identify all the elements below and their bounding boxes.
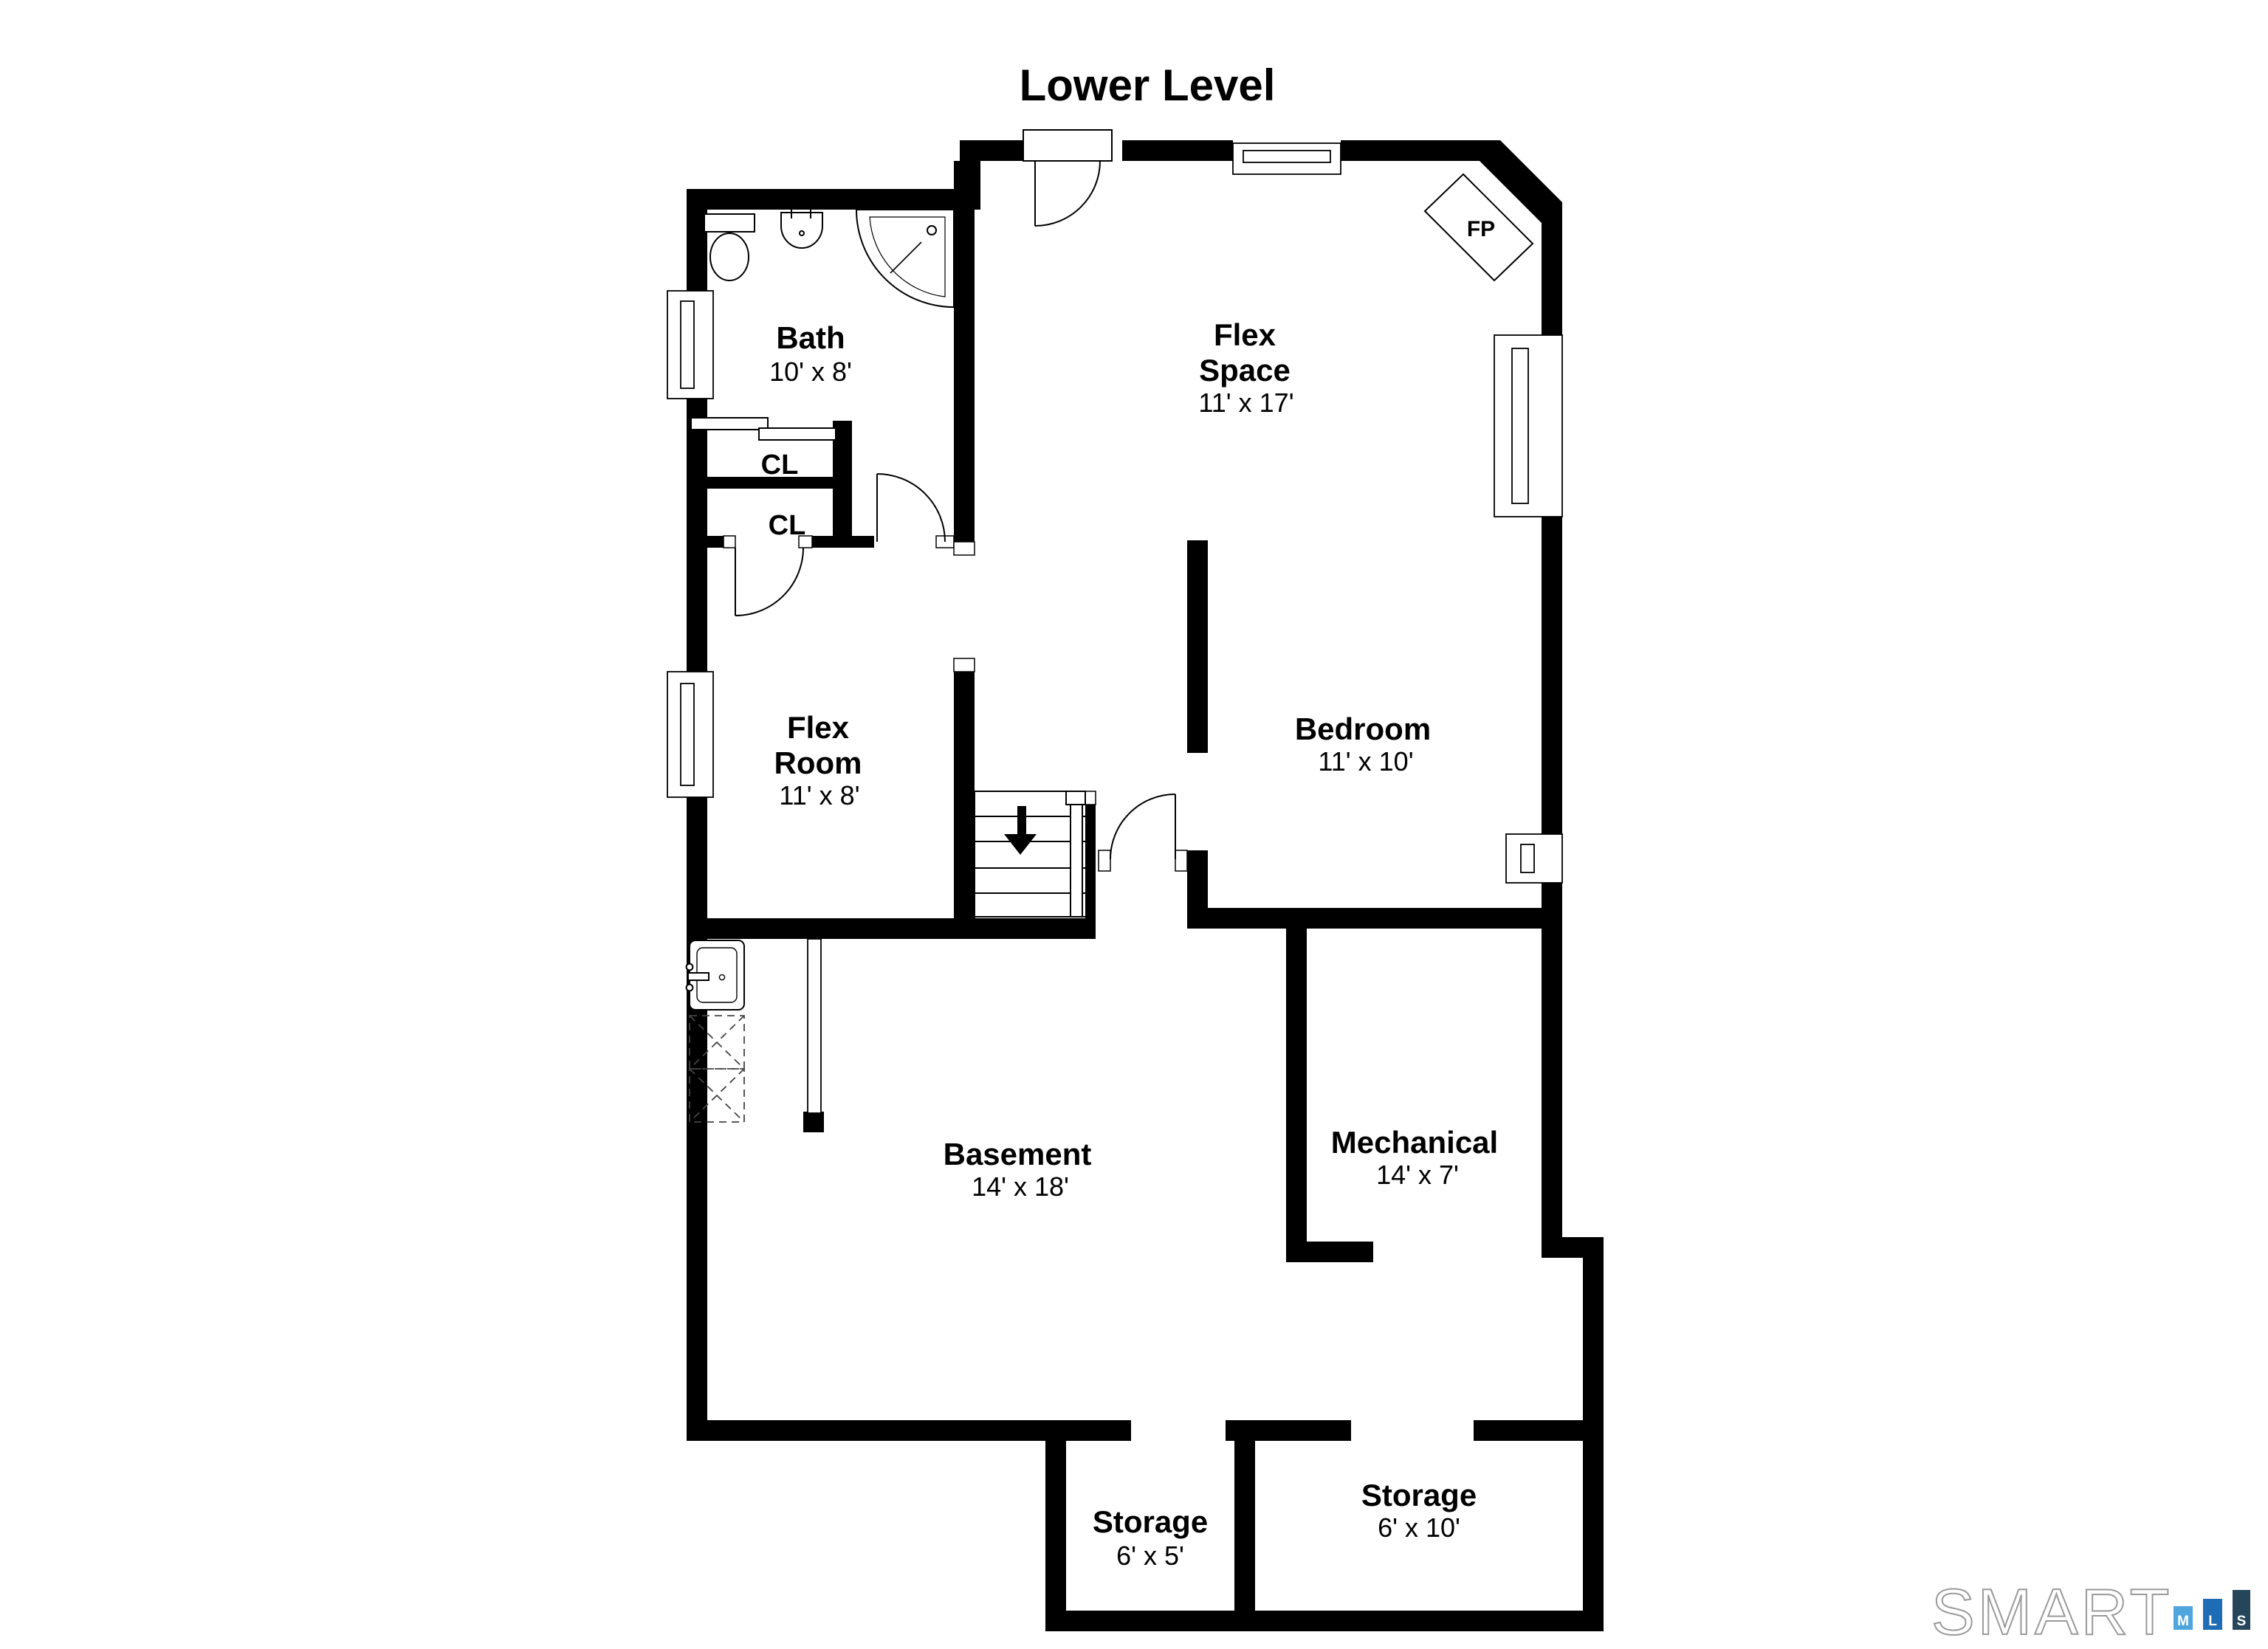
arrow-head — [1004, 834, 1037, 855]
door-swing-arc — [877, 474, 945, 542]
wall-stair-right — [1085, 805, 1096, 918]
bath-door — [877, 474, 945, 542]
room-storage-2: Storage — [1361, 1478, 1477, 1512]
room-flex-space-dims: 11' x 17' — [1198, 388, 1293, 418]
sliding-door-panel — [759, 428, 836, 440]
room-storage-2-dims: 6' x 10' — [1378, 1512, 1460, 1543]
jamb — [954, 542, 975, 555]
wall-right-2 — [1542, 517, 1562, 836]
wall-bath-top — [687, 189, 980, 210]
room-flex-room-line2: Room — [774, 746, 862, 780]
bedroom-door — [1110, 794, 1175, 859]
wall-basement-bottom-3 — [1474, 1420, 1604, 1441]
wall-basement-bottom-1 — [687, 1420, 1131, 1441]
window-sash — [1521, 844, 1534, 872]
toilet-tank — [704, 214, 755, 232]
laundry-half-wall — [808, 939, 821, 1113]
flexspace-top-window — [1233, 143, 1341, 174]
room-mechanical: Mechanical — [1331, 1125, 1498, 1160]
stair-rail — [1071, 797, 1082, 917]
door-swing-arc — [1035, 161, 1100, 226]
closet-flexroom-door — [735, 548, 803, 616]
floor-plan-page: Lower LevelBath10' x 8'CLCLFlexSpace11' … — [0, 0, 2268, 1649]
arrow-stem — [1017, 806, 1026, 834]
logo-letter-s: S — [2237, 1614, 2247, 1629]
sink-knob — [687, 964, 693, 971]
title: Lower Level — [1020, 61, 1276, 110]
room-storage-1-dims: 6' x 5' — [1116, 1540, 1184, 1571]
wall-bath-flex-upper — [954, 161, 975, 542]
wall-flexroom-bottom — [687, 918, 1096, 939]
sink-faucet-spout — [688, 973, 709, 980]
closet-upper: CL — [761, 450, 799, 481]
jamb — [954, 658, 975, 672]
window-sash — [681, 301, 694, 388]
wall-right-3 — [1542, 881, 1562, 1237]
wall-right-1 — [1542, 202, 1562, 335]
room-flex-room-line1: Flex — [787, 710, 850, 745]
wall-basement-bottom-2 — [1226, 1420, 1351, 1441]
toilet-bowl — [710, 233, 749, 280]
fireplace-label: FP — [1467, 217, 1495, 241]
room-storage-1: Storage — [1093, 1504, 1208, 1539]
bedroom-window — [1506, 834, 1562, 883]
entry-door-top — [1023, 130, 1112, 226]
wall-right-lower — [1583, 1258, 1604, 1631]
room-flex-space-line1: Flex — [1214, 317, 1276, 352]
floor-plan-svg: Lower LevelBath10' x 8'CLCLFlexSpace11' … — [0, 0, 2268, 1649]
stairs-down-arrow — [1004, 806, 1037, 855]
room-bedroom: Bedroom — [1295, 712, 1431, 746]
bath-sink — [781, 207, 822, 248]
logo-letter-l: L — [2208, 1614, 2217, 1629]
wall-bedroom-west — [1187, 540, 1208, 753]
wall-flex-top-3 — [1341, 140, 1500, 161]
jamb — [1085, 791, 1096, 805]
sliding-door-panel — [691, 418, 768, 430]
wall-mechanical-stub — [1307, 1242, 1373, 1262]
bath-fixtures — [704, 207, 954, 307]
room-bath: Bath — [776, 320, 845, 355]
wall-closet-bottom-1 — [687, 536, 724, 548]
logo-letter-m: M — [2177, 1614, 2189, 1629]
wall-mechanical-west — [1286, 929, 1307, 1262]
corner-shower — [856, 210, 954, 307]
logo-word: SMART — [1931, 1575, 2172, 1648]
door-frame — [1023, 130, 1112, 161]
jamb — [1099, 850, 1110, 871]
sink-knob — [687, 985, 693, 991]
room-basement: Basement — [944, 1137, 1092, 1171]
room-basement-dims: 14' x 18' — [972, 1171, 1069, 1202]
jamb — [1175, 850, 1187, 871]
wall-flex-top-1 — [980, 140, 1028, 161]
closet-sliding-doors — [691, 418, 836, 440]
window-sash — [681, 684, 694, 785]
wall-bedroom-bottom — [1187, 908, 1562, 929]
utility-sink — [687, 940, 744, 1010]
jamb — [724, 536, 735, 548]
room-bath-dims: 10' x 8' — [769, 357, 852, 387]
wall-storage-bottom — [1045, 1611, 1604, 1631]
wall-flexroom-right — [954, 672, 975, 918]
bath-window — [667, 291, 713, 399]
room-labels: Lower LevelBath10' x 8'CLCLFlexSpace11' … — [761, 61, 1499, 1571]
room-flex-room-dims: 11' x 8' — [779, 780, 859, 810]
toilet — [704, 214, 755, 280]
staircase — [975, 791, 1085, 918]
window-sash — [1512, 348, 1528, 503]
wall-left-2 — [687, 399, 707, 672]
stair-rail-cap — [1066, 791, 1085, 805]
wall-storage1-west — [1045, 1441, 1066, 1631]
wall-closet-bottom-2 — [812, 536, 874, 548]
smartmls-logo: SMARTMLS — [1931, 1575, 2250, 1648]
closet-lower: CL — [769, 510, 806, 541]
shower-head — [927, 226, 936, 235]
window-sash — [1243, 151, 1330, 162]
flexroom-window — [667, 672, 713, 797]
wall-storage-partition — [1234, 1441, 1255, 1611]
wall-flex-top-2 — [1122, 140, 1233, 161]
wall-laundry-cap — [803, 1112, 824, 1132]
door-swing-arc — [1110, 794, 1175, 859]
wall-right-jog — [1542, 1237, 1604, 1258]
door-swing-arc — [735, 548, 803, 616]
room-bedroom-dims: 11' x 10' — [1318, 746, 1413, 777]
flexspace-right-window — [1494, 335, 1562, 517]
room-mechanical-dims: 14' x 7' — [1376, 1160, 1459, 1190]
room-flex-space-line2: Space — [1199, 353, 1291, 388]
